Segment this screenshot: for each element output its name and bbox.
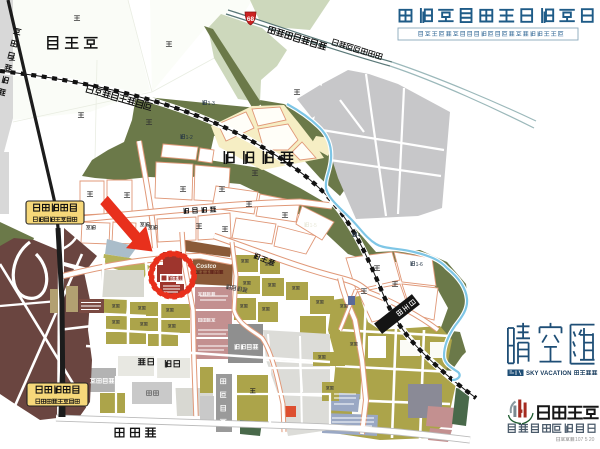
svg-text:1-3: 1-3 [208, 101, 215, 107]
svg-text:1-2: 1-2 [186, 135, 193, 141]
svg-text:68: 68 [247, 16, 255, 23]
svg-text:Costco: Costco [196, 264, 217, 270]
svg-text:107 5 20: 107 5 20 [575, 437, 595, 443]
svg-text:1-6: 1-6 [416, 262, 423, 268]
svg-text:SKY VACATION: SKY VACATION [526, 371, 572, 377]
svg-text:1-5: 1-5 [310, 223, 317, 229]
svg-text:4: 4 [358, 233, 361, 239]
